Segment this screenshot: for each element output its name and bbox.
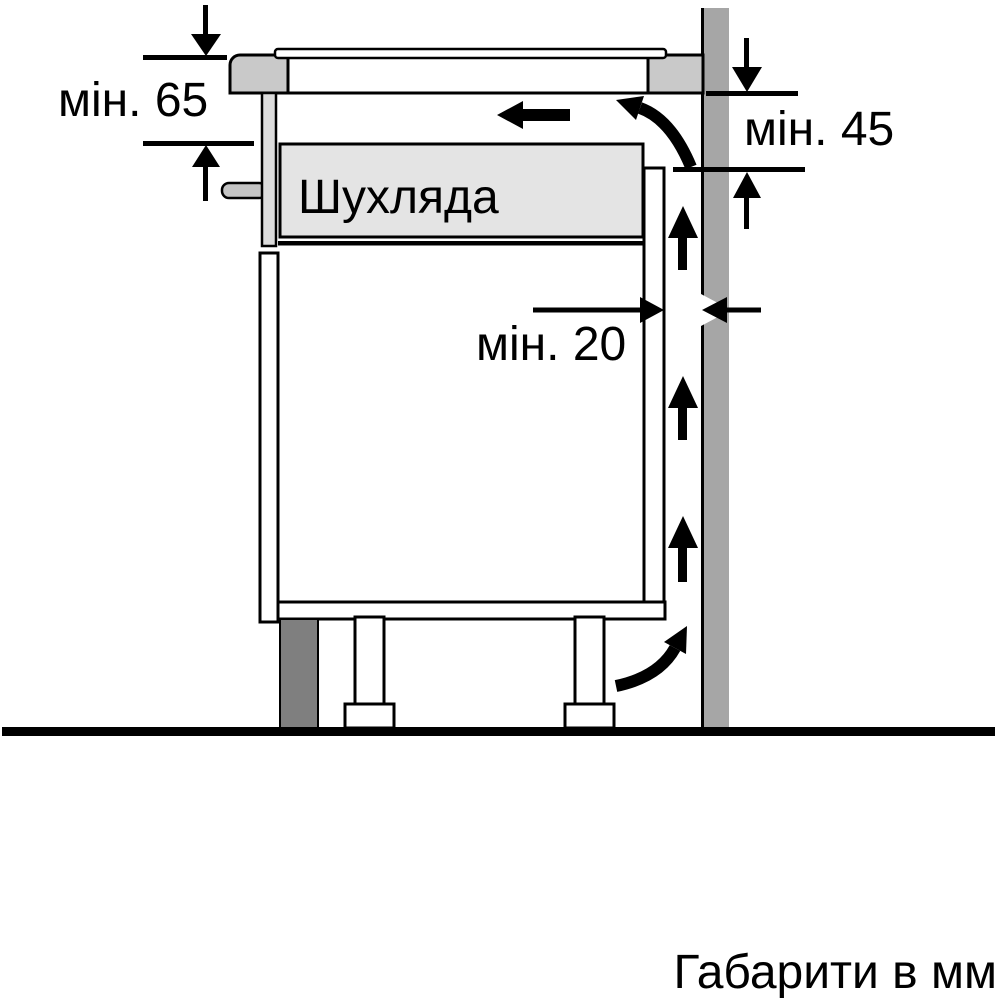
dim-45-up-arrow-icon bbox=[733, 172, 761, 198]
dim-20-wall-arrow-shaft bbox=[726, 308, 761, 313]
leg-front-foot bbox=[345, 704, 394, 728]
airflow-up-arrow-1-shaft bbox=[678, 236, 687, 270]
cabinet-bottom-panel bbox=[278, 602, 665, 619]
cabinet-back-panel bbox=[644, 168, 664, 602]
leg-back-shaft bbox=[575, 617, 604, 706]
label-min-20: мін. 20 bbox=[476, 321, 626, 369]
installation-diagram: мін. 65 мін. 45 мін. 20 Шухляда Габарити… bbox=[0, 0, 1000, 1000]
worktop-back-block bbox=[648, 55, 703, 93]
cabinet-front-panel bbox=[260, 253, 278, 622]
airflow-curve-bottom bbox=[616, 648, 675, 686]
front-trim-panel bbox=[262, 93, 276, 246]
leg-back-foot bbox=[565, 704, 614, 728]
cabinet-divider-line bbox=[278, 241, 646, 246]
airflow-up-arrow-2-shaft bbox=[678, 406, 687, 440]
dim-65-down-arrow-icon bbox=[191, 34, 221, 56]
plinth bbox=[280, 619, 318, 728]
dim-65-up-arrow-shaft bbox=[203, 166, 208, 201]
floor-line bbox=[2, 727, 995, 736]
wall bbox=[701, 8, 729, 728]
dim-65-down-arrow-shaft bbox=[203, 5, 208, 36]
dim-65-up-arrow-icon bbox=[192, 145, 220, 167]
dim-65-top-line bbox=[143, 55, 227, 60]
airflow-left-arrow-icon bbox=[497, 101, 523, 129]
dim-65-bottom-line bbox=[143, 141, 254, 146]
label-min-65: мін. 65 bbox=[58, 77, 208, 125]
airflow-up-arrow-1-icon bbox=[668, 206, 698, 238]
hob-body bbox=[288, 55, 648, 93]
airflow-up-arrow-2-icon bbox=[668, 376, 698, 408]
worktop-front-block bbox=[230, 55, 288, 93]
hob-glass-top bbox=[275, 49, 666, 58]
label-min-45: мін. 45 bbox=[744, 106, 894, 154]
airflow-curve-top-arrow-icon bbox=[616, 96, 644, 120]
dim-45-bottom-line bbox=[673, 167, 805, 172]
airflow-up-arrow-3-icon bbox=[668, 516, 698, 548]
airflow-up-arrow-3-shaft bbox=[678, 546, 687, 582]
dim-45-top-line bbox=[706, 91, 798, 96]
wall-edge-line bbox=[701, 8, 704, 728]
leg-front-shaft bbox=[355, 617, 384, 706]
label-drawer: Шухляда bbox=[298, 174, 499, 222]
caption-dimensions-in-mm: Габарити в мм bbox=[673, 949, 997, 997]
dim-45-down-arrow-shaft bbox=[744, 38, 749, 69]
dim-45-down-arrow-icon bbox=[732, 67, 762, 92]
airflow-curve-top bbox=[640, 108, 691, 167]
mounting-pin bbox=[222, 183, 266, 198]
dim-45-up-arrow-shaft bbox=[744, 196, 749, 229]
dim-20-arrow-shaft bbox=[533, 308, 641, 313]
airflow-left-arrow-shaft bbox=[522, 109, 570, 121]
